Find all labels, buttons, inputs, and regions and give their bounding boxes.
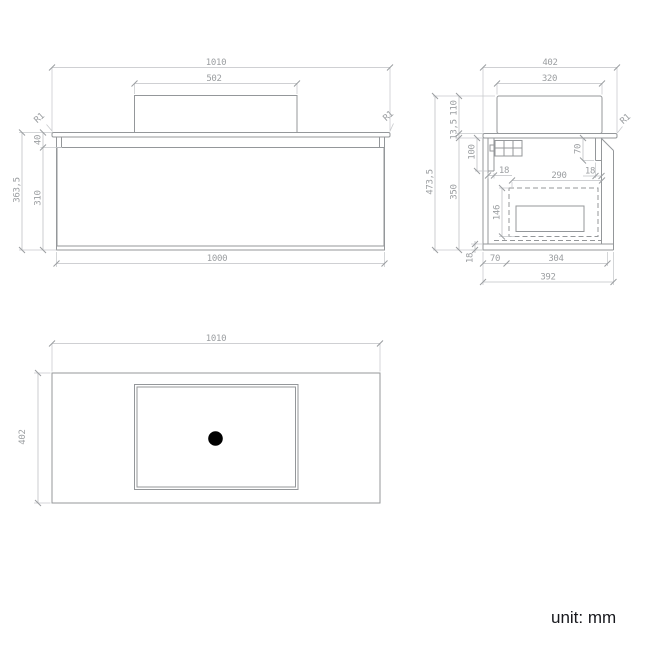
- front-cabinet-outline: [57, 137, 385, 250]
- front-total-height-label: 363,5: [13, 177, 23, 203]
- vanity-technical-drawing-page: 1010 502 1000 363,5 310 40 R1 R1: [0, 0, 650, 650]
- front-cabinet-width-label: 1000: [207, 254, 227, 264]
- vanity-drawing-svg: 1010 502 1000 363,5 310 40 R1 R1: [0, 0, 650, 650]
- side-front-rail-height-label: 70: [574, 144, 584, 154]
- side-bottom-panel-thickness-label: 18: [466, 253, 476, 263]
- front-basin-outline: [135, 96, 298, 133]
- drawer-inner-box: [516, 206, 584, 232]
- plan-drain-inner: [211, 434, 220, 443]
- side-basin-height-label: 110: [450, 100, 460, 115]
- side-bottom-offset-label: 70: [490, 254, 500, 264]
- front-countertop-outline: [52, 133, 390, 138]
- side-cabinet-depth-label: 392: [540, 273, 555, 283]
- front-view: 1010 502 1000 363,5 310 40 R1 R1: [13, 58, 396, 267]
- side-view: 402 320 110 13,5 350 473,5 100 18 290 70…: [426, 58, 633, 285]
- plan-overall-width-label: 1010: [206, 334, 226, 344]
- side-cabinet-height-label: 350: [450, 184, 460, 199]
- unit-label: unit: mm: [551, 608, 616, 627]
- side-back-rail-height-label: 100: [468, 144, 478, 159]
- wall-mount-bracket: [490, 141, 522, 157]
- drawer-hidden-outline: [509, 188, 598, 237]
- plan-overall-depth-label: 402: [18, 429, 28, 444]
- side-drawer-depth-label: 290: [551, 171, 566, 181]
- side-overall-height-label: 473,5: [426, 169, 436, 195]
- front-fluted-height-label: 310: [34, 190, 44, 205]
- front-radius-left-label: R1: [33, 111, 47, 125]
- side-basin-outline: [497, 96, 602, 134]
- side-drawer-height-label: 146: [493, 205, 503, 220]
- side-radius-label: R1: [619, 112, 633, 126]
- side-countertop-thickness-label: 13,5: [450, 119, 460, 139]
- front-basin-width-label: 502: [206, 74, 221, 84]
- front-radius-right-label: R1: [382, 109, 396, 123]
- side-overall-depth-label: 402: [542, 58, 557, 68]
- side-countertop-outline: [483, 134, 617, 139]
- front-view-geometry: [52, 96, 390, 251]
- plan-view: 1010 402: [18, 334, 380, 503]
- side-front-panel-thickness-label: 18: [585, 167, 595, 177]
- plan-view-geometry: [52, 373, 380, 503]
- side-basin-depth-label: 320: [542, 74, 557, 84]
- front-top-band-height-label: 40: [34, 135, 44, 145]
- front-overall-width-label: 1010: [206, 58, 226, 68]
- side-back-panel-thickness-label: 18: [499, 166, 509, 176]
- side-bottom-clear-depth-label: 304: [548, 254, 563, 264]
